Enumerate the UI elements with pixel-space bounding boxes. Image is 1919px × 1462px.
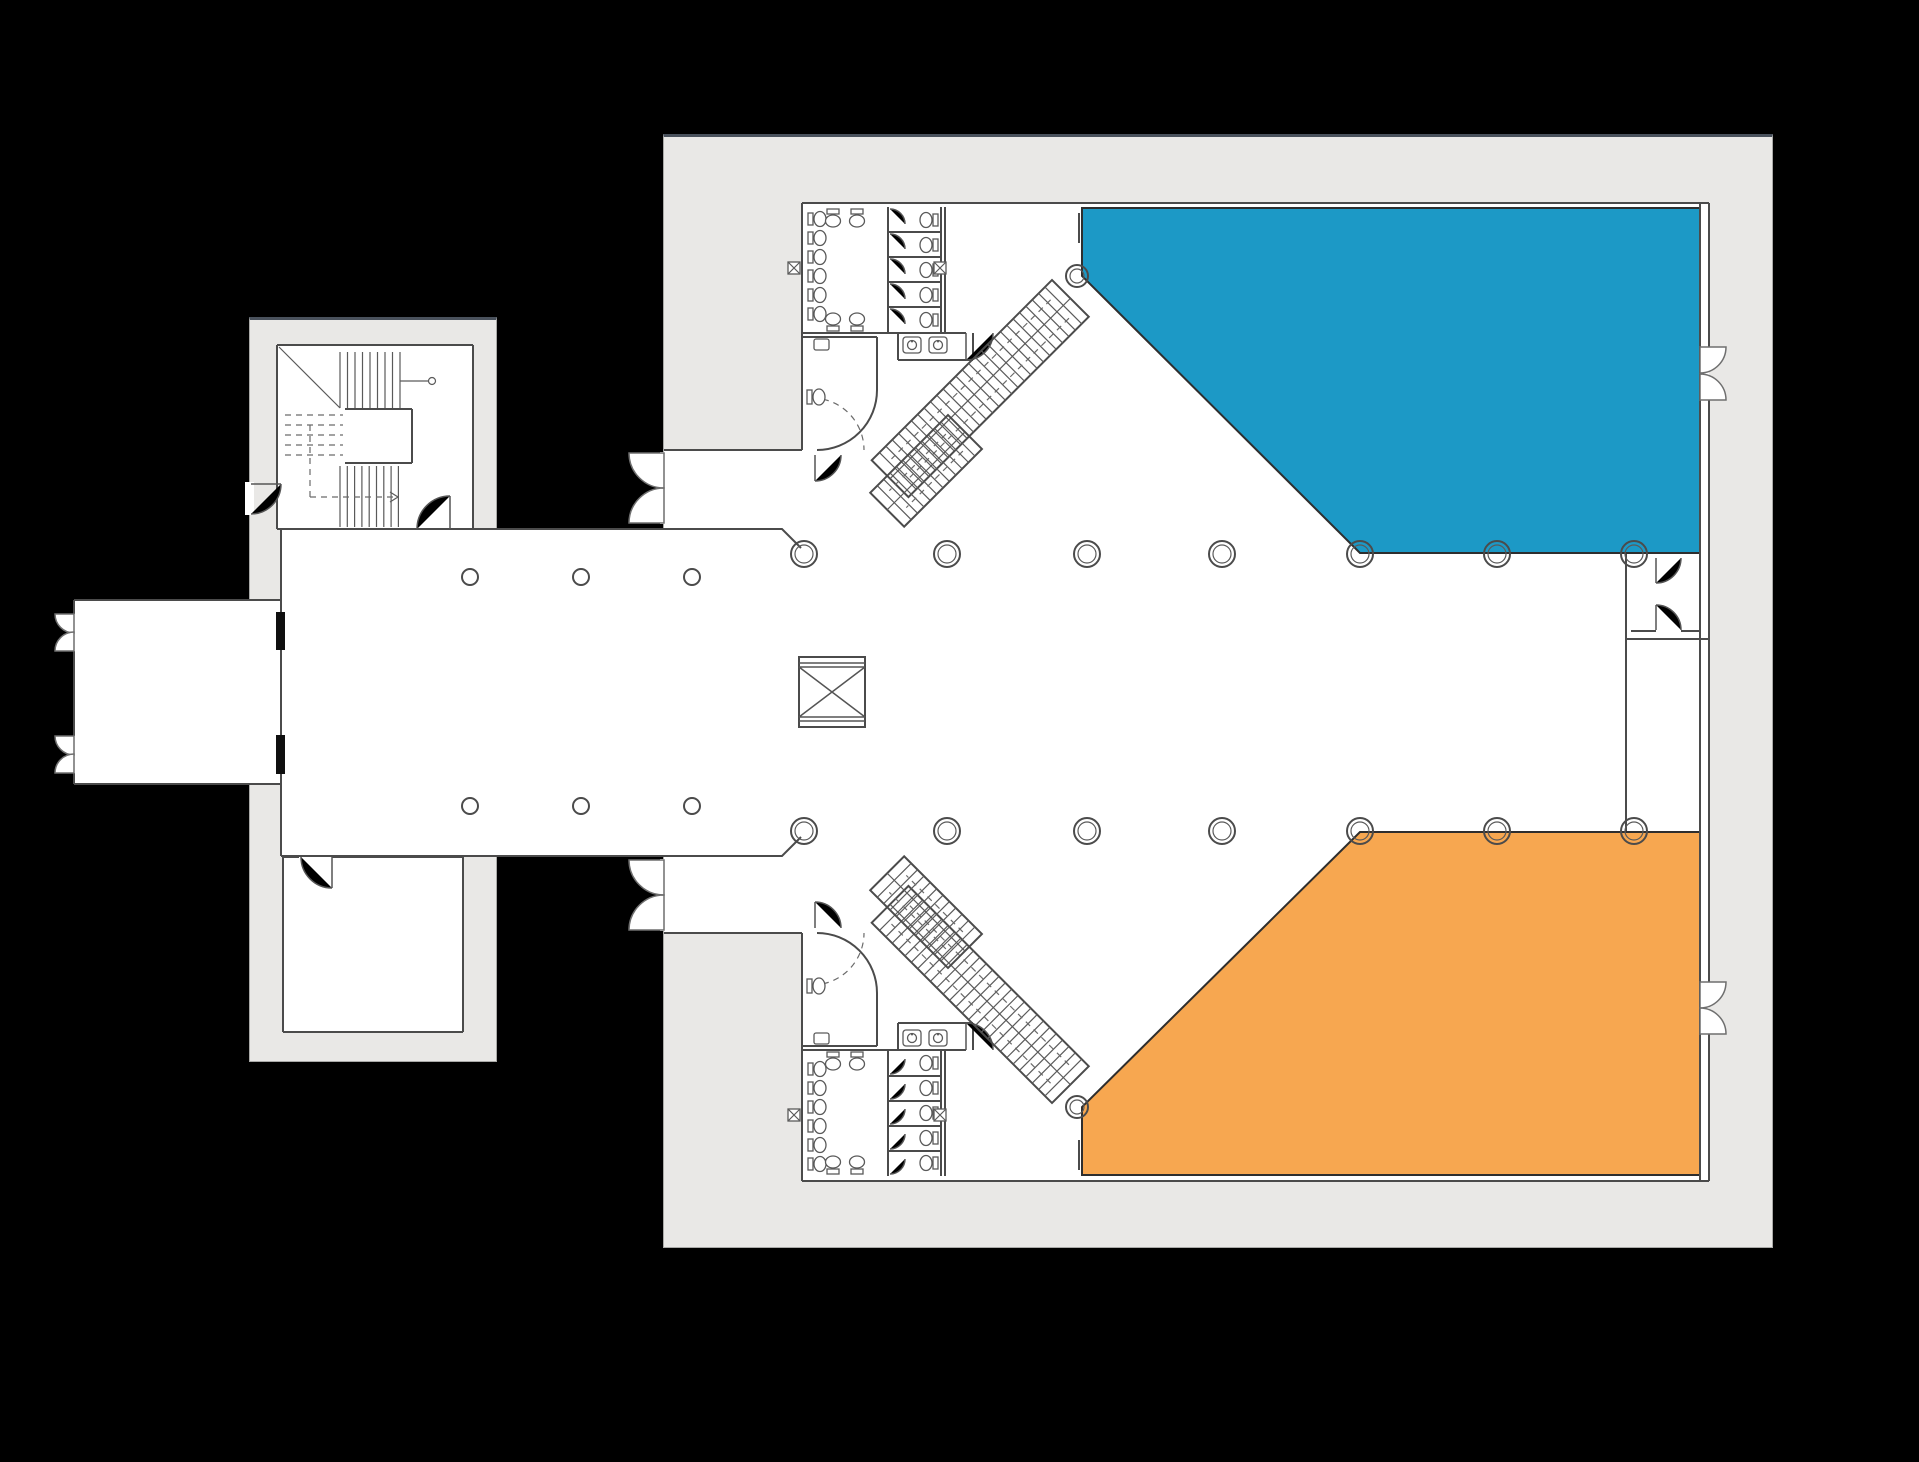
lower-hall-region <box>1082 832 1700 1175</box>
upper-hall-region <box>1082 208 1700 553</box>
plan-linework-layer <box>0 0 1919 1462</box>
floor-plan-canvas <box>0 0 1919 1462</box>
